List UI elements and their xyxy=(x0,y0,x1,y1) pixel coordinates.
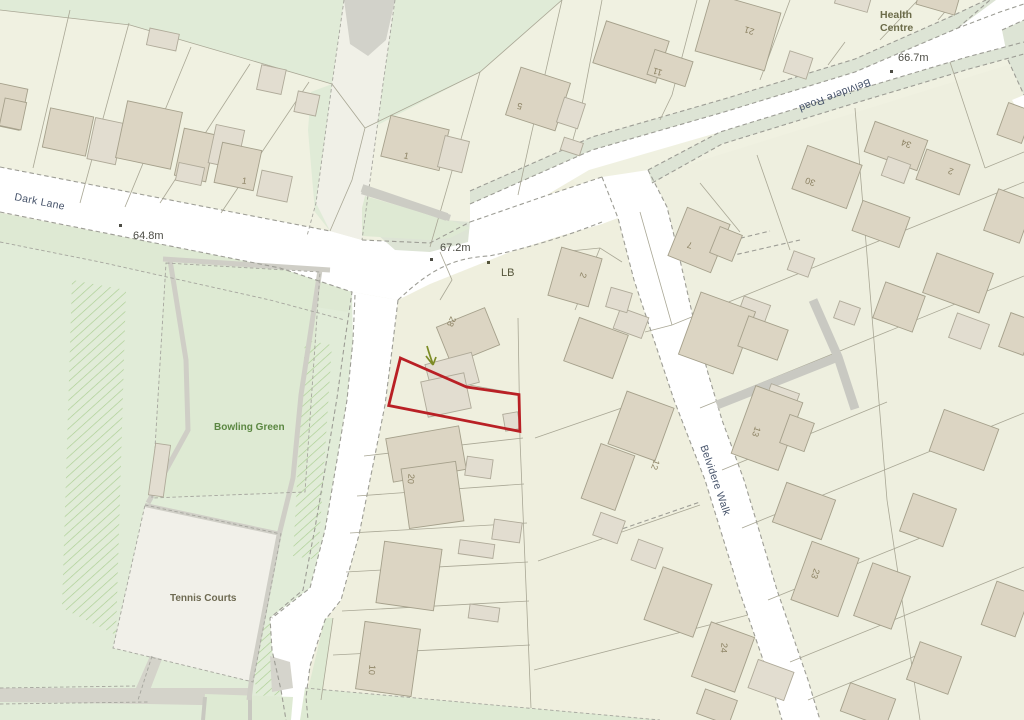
svg-text:Bowling Green: Bowling Green xyxy=(214,422,285,433)
svg-text:Health: Health xyxy=(880,9,912,21)
svg-text:LB: LB xyxy=(501,267,514,279)
svg-text:Centre: Centre xyxy=(880,22,913,34)
svg-text:64.8m: 64.8m xyxy=(133,230,164,242)
svg-text:20: 20 xyxy=(406,473,417,484)
svg-text:67.2m: 67.2m xyxy=(440,242,471,254)
svg-text:Tennis Courts: Tennis Courts xyxy=(170,593,237,604)
svg-text:24: 24 xyxy=(719,642,730,653)
svg-text:10: 10 xyxy=(367,664,378,675)
svg-text:66.7m: 66.7m xyxy=(898,52,929,64)
